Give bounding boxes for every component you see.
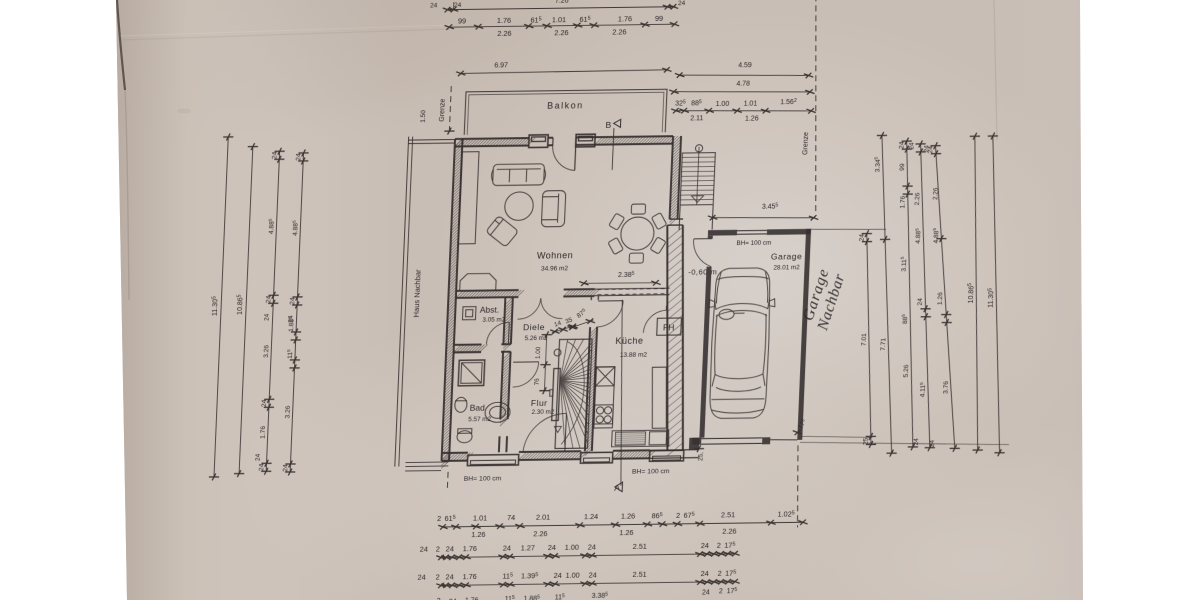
svg-text:1.01: 1.01 — [473, 513, 488, 522]
svg-text:115: 115 — [504, 595, 515, 600]
svg-text:5.26: 5.26 — [903, 364, 911, 377]
svg-text:25,: 25, — [863, 436, 870, 445]
svg-text:2: 2 — [717, 569, 721, 578]
svg-text:1.26: 1.26 — [621, 511, 636, 520]
svg-text:1.26: 1.26 — [937, 292, 945, 305]
svg-text:Diele: Diele — [523, 322, 545, 332]
svg-text:74: 74 — [507, 513, 515, 522]
svg-text:1.24: 1.24 — [584, 512, 599, 521]
svg-text:3.05 m2: 3.05 m2 — [482, 316, 506, 323]
svg-text:24: 24 — [929, 440, 936, 448]
svg-text:1.00: 1.00 — [715, 101, 729, 108]
svg-text:FH: FH — [663, 322, 675, 332]
svg-text:24: 24 — [289, 297, 296, 305]
svg-text:13.88 m2: 13.88 m2 — [620, 351, 648, 358]
svg-text:10.865: 10.865 — [966, 283, 975, 304]
svg-text:24: 24 — [265, 295, 272, 303]
svg-text:5.26 m2: 5.26 m2 — [524, 335, 548, 342]
svg-text:11.305: 11.305 — [211, 296, 220, 316]
svg-text:Küche: Küche — [615, 335, 643, 345]
svg-text:24: 24 — [701, 541, 709, 550]
svg-text:2.51: 2.51 — [633, 542, 648, 551]
svg-text:2.51: 2.51 — [721, 510, 736, 519]
svg-text:2.26: 2.26 — [932, 187, 940, 200]
svg-text:24: 24 — [417, 573, 425, 582]
svg-text:24: 24 — [700, 569, 708, 578]
svg-text:24: 24 — [678, 0, 686, 7]
svg-text:-0,60 m: -0,60 m — [688, 268, 717, 277]
svg-text:28.01 m2: 28.01 m2 — [773, 264, 800, 271]
svg-text:24: 24 — [264, 313, 271, 321]
svg-text:24: 24 — [261, 399, 268, 407]
svg-text:Grenze: Grenze — [802, 132, 810, 155]
svg-text:2.51: 2.51 — [632, 570, 647, 579]
svg-text:2.26: 2.26 — [497, 29, 512, 38]
svg-text:7.26: 7.26 — [555, 0, 569, 5]
svg-text:24: 24 — [258, 463, 265, 471]
svg-text:2: 2 — [435, 572, 439, 581]
svg-text:24: 24 — [454, 2, 462, 9]
svg-text:11.305: 11.305 — [986, 288, 995, 308]
svg-text:99: 99 — [655, 14, 663, 23]
svg-text:115: 115 — [555, 593, 566, 600]
svg-text:3.26: 3.26 — [263, 345, 271, 358]
svg-text:76: 76 — [534, 378, 541, 386]
svg-text:BH= 100 cm: BH= 100 cm — [736, 240, 771, 247]
svg-text:2: 2 — [436, 544, 440, 553]
svg-text:1.50: 1.50 — [420, 110, 428, 123]
svg-text:7.01: 7.01 — [860, 333, 868, 346]
svg-text:1.00: 1.00 — [535, 346, 543, 359]
svg-text:1.76: 1.76 — [260, 426, 268, 439]
svg-text:24: 24 — [271, 151, 278, 159]
svg-text:1.76: 1.76 — [463, 544, 478, 553]
svg-text:1.26: 1.26 — [619, 528, 634, 537]
svg-text:Bad: Bad — [470, 402, 486, 412]
svg-text:25,: 25, — [697, 452, 704, 461]
svg-text:99: 99 — [458, 16, 466, 25]
svg-text:24: 24 — [898, 141, 905, 149]
svg-text:3.26: 3.26 — [284, 405, 292, 418]
svg-text:B: B — [605, 120, 611, 130]
svg-text:24: 24 — [702, 589, 710, 596]
svg-text:Flur: Flur — [531, 398, 548, 408]
svg-text:1.00: 1.00 — [565, 571, 580, 580]
svg-text:34.96 m2: 34.96 m2 — [541, 265, 569, 272]
svg-text:24: 24 — [553, 571, 561, 580]
svg-text:10.865: 10.865 — [236, 294, 245, 315]
svg-text:1.76: 1.76 — [462, 572, 477, 581]
svg-text:1.01: 1.01 — [552, 15, 567, 24]
svg-text:Garage: Garage — [771, 251, 803, 261]
svg-text:2.26: 2.26 — [554, 28, 569, 37]
svg-text:2.11: 2.11 — [690, 115, 703, 122]
svg-text:7.71: 7.71 — [880, 338, 888, 351]
svg-text:24: 24 — [503, 544, 511, 553]
svg-text:24: 24 — [282, 464, 289, 472]
svg-text:24: 24 — [917, 298, 924, 306]
svg-text:1.76: 1.76 — [497, 16, 512, 25]
svg-text:24: 24 — [430, 2, 438, 9]
svg-text:5.57 m2: 5.57 m2 — [468, 416, 492, 423]
svg-text:24: 24 — [287, 315, 294, 323]
svg-text:4.59: 4.59 — [738, 62, 752, 69]
svg-text:24: 24 — [548, 543, 556, 552]
svg-text:1.00: 1.00 — [565, 543, 580, 552]
svg-text:Grenze: Grenze — [439, 99, 447, 122]
svg-text:Abst.: Abst. — [480, 304, 500, 314]
svg-text:BH= 100 cm: BH= 100 cm — [464, 475, 502, 482]
svg-text:1.76: 1.76 — [899, 195, 907, 208]
svg-text:24: 24 — [420, 545, 428, 554]
svg-text:Balkon: Balkon — [547, 100, 584, 110]
svg-text:1.01: 1.01 — [743, 101, 757, 108]
svg-text:2.26: 2.26 — [914, 192, 922, 205]
svg-text:6.97: 6.97 — [494, 62, 508, 69]
svg-text:2.26: 2.26 — [722, 527, 737, 536]
svg-text:1.27: 1.27 — [521, 543, 536, 552]
svg-text:24: 24 — [913, 438, 920, 446]
svg-text:4.78: 4.78 — [736, 81, 750, 88]
svg-text:2: 2 — [437, 514, 441, 523]
svg-text:24: 24 — [295, 153, 302, 161]
svg-text:24: 24 — [255, 453, 262, 461]
svg-text:2.01: 2.01 — [536, 513, 551, 522]
svg-text:99: 99 — [899, 163, 906, 171]
svg-text:BH= 100 cm: BH= 100 cm — [632, 468, 670, 475]
svg-text:2: 2 — [676, 511, 680, 520]
svg-text:Wohnen: Wohnen — [537, 250, 574, 260]
svg-text:1.885: 1.885 — [523, 594, 540, 600]
svg-text:24: 24 — [445, 572, 453, 581]
svg-text:24: 24 — [446, 544, 454, 553]
svg-text:24: 24 — [923, 145, 930, 153]
svg-text:2: 2 — [717, 541, 721, 550]
svg-text:24: 24 — [908, 142, 915, 150]
svg-text:24: 24 — [588, 542, 596, 551]
svg-text:2.26: 2.26 — [612, 27, 627, 36]
svg-text:2: 2 — [719, 588, 723, 595]
svg-text:3.76: 3.76 — [942, 381, 950, 394]
svg-text:1.76: 1.76 — [618, 14, 633, 23]
svg-text:1.26: 1.26 — [471, 530, 486, 539]
svg-text:24: 24 — [588, 570, 596, 579]
svg-text:24: 24 — [859, 234, 866, 242]
svg-text:2.26: 2.26 — [533, 529, 548, 538]
svg-text:1.26: 1.26 — [745, 116, 759, 123]
